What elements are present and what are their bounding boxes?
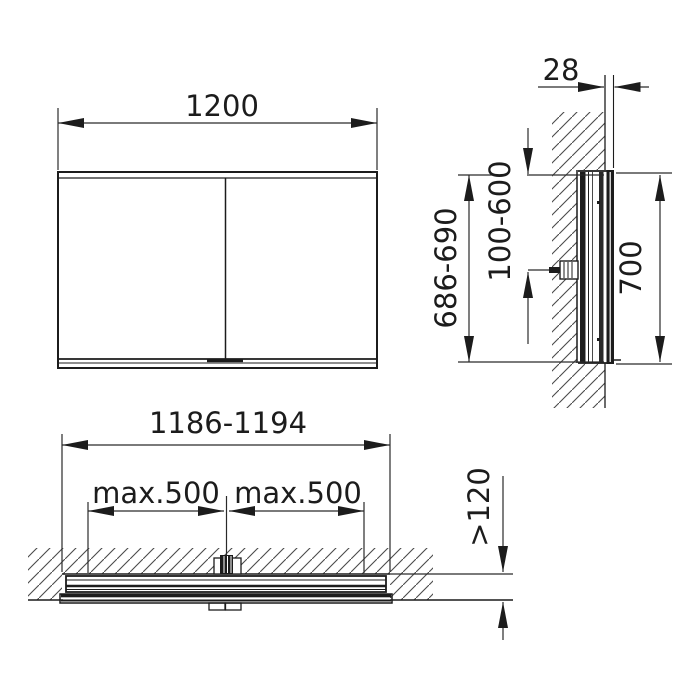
side-connection-pin: [549, 267, 560, 273]
front-width-label: 1200: [185, 89, 259, 123]
side-hinge-mark-top: [597, 201, 600, 204]
plan-niche-width-label: 1186-1194: [149, 406, 307, 440]
side-cabinet-body-band: [599, 172, 604, 362]
plan-niche-depth-label: >120: [462, 467, 496, 547]
door-height-label: 700: [614, 240, 648, 295]
side-connection-box: [560, 261, 578, 279]
connection-height-label: 100-600: [483, 160, 517, 281]
technical-drawing-canvas: 1200 28: [0, 0, 700, 700]
side-wall-hatch-top: [552, 112, 605, 170]
plan-max-left-label: max.500: [92, 476, 220, 510]
mirror-cabinet-drawing: 1200 28: [0, 0, 700, 700]
depth-label: 28: [543, 53, 580, 87]
plan-wall-hatch-left: [28, 548, 62, 600]
plan-max-right-label: max.500: [234, 476, 362, 510]
niche-height-label: 686-690: [429, 207, 463, 328]
plan-mirror-door-band-1: [61, 595, 391, 598]
side-wall-hatch-bottom: [552, 363, 605, 408]
side-cabinet-back-panel: [580, 172, 586, 362]
side-hinge-mark-bottom: [597, 338, 600, 341]
plan-mirror-door-band-2: [61, 600, 391, 602]
